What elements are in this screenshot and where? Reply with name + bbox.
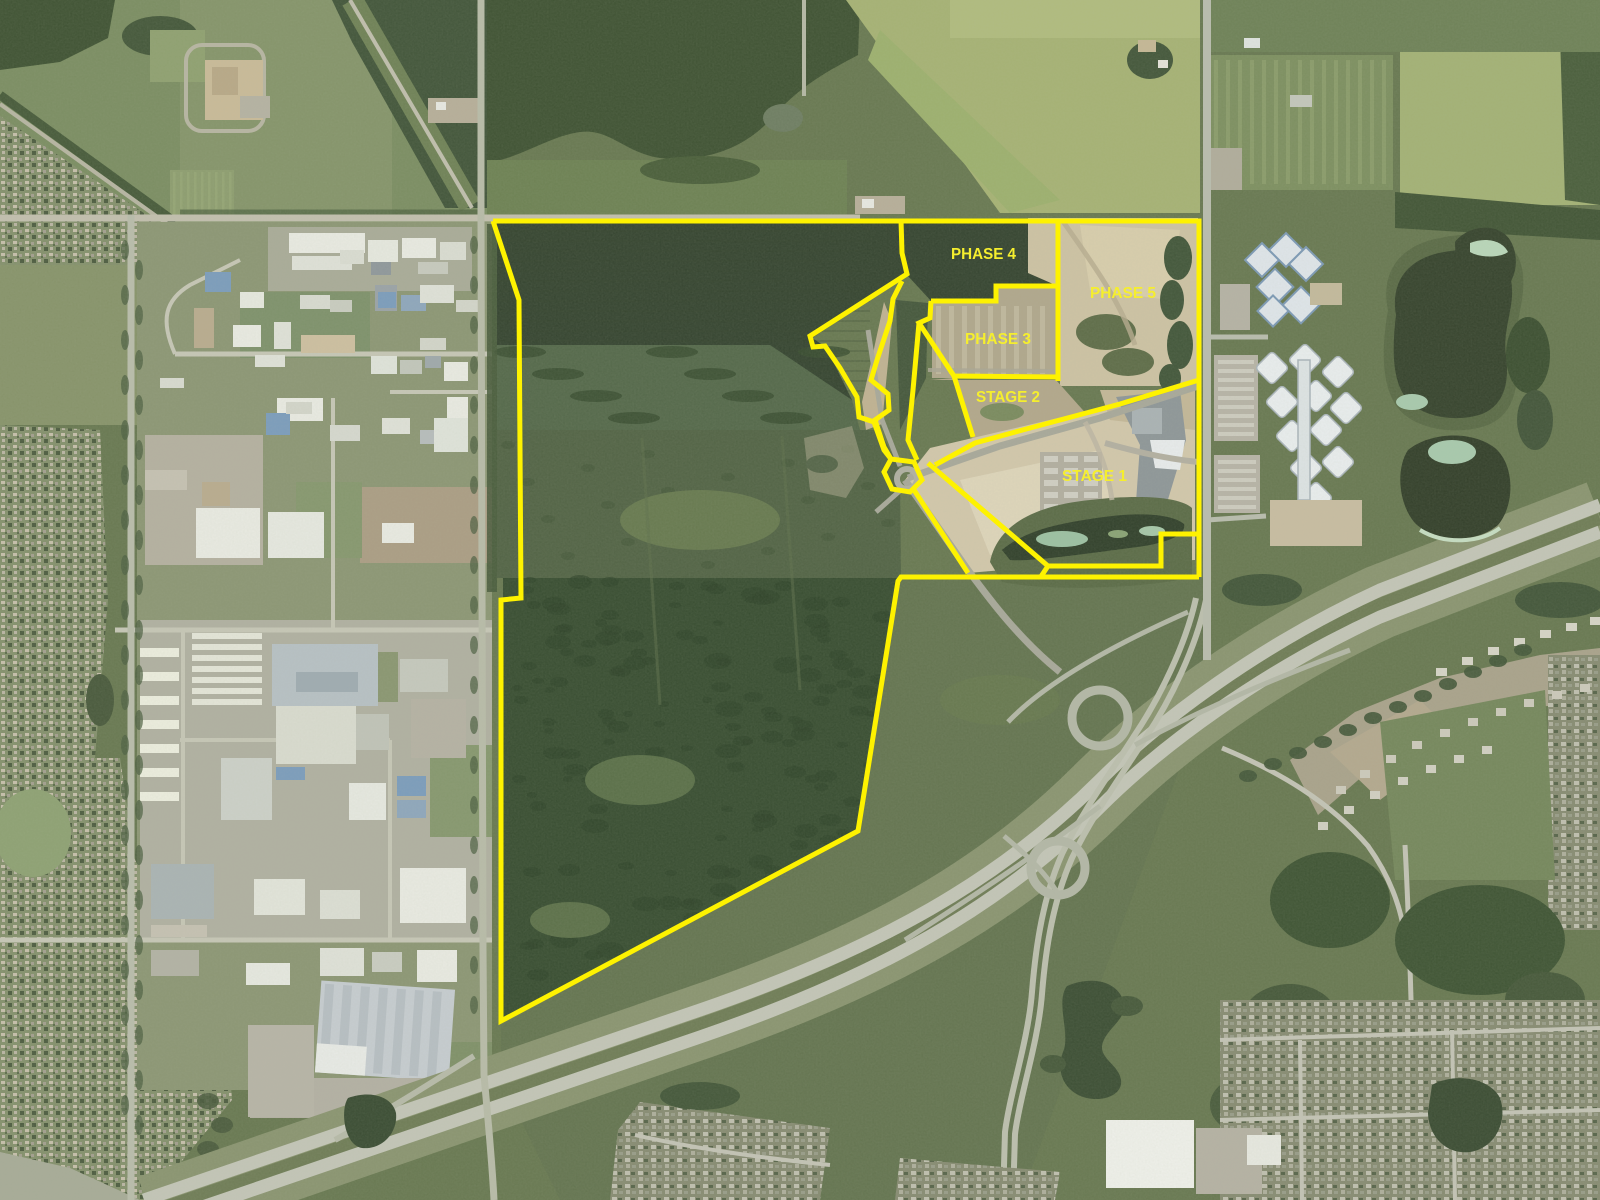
svg-text:PHASE 5: PHASE 5: [1090, 285, 1156, 302]
svg-text:STAGE 1: STAGE 1: [1062, 468, 1127, 485]
svg-text:PHASE 3: PHASE 3: [965, 331, 1031, 348]
svg-text:PHASE 4: PHASE 4: [951, 246, 1016, 263]
svg-text:STAGE 2: STAGE 2: [976, 389, 1040, 406]
